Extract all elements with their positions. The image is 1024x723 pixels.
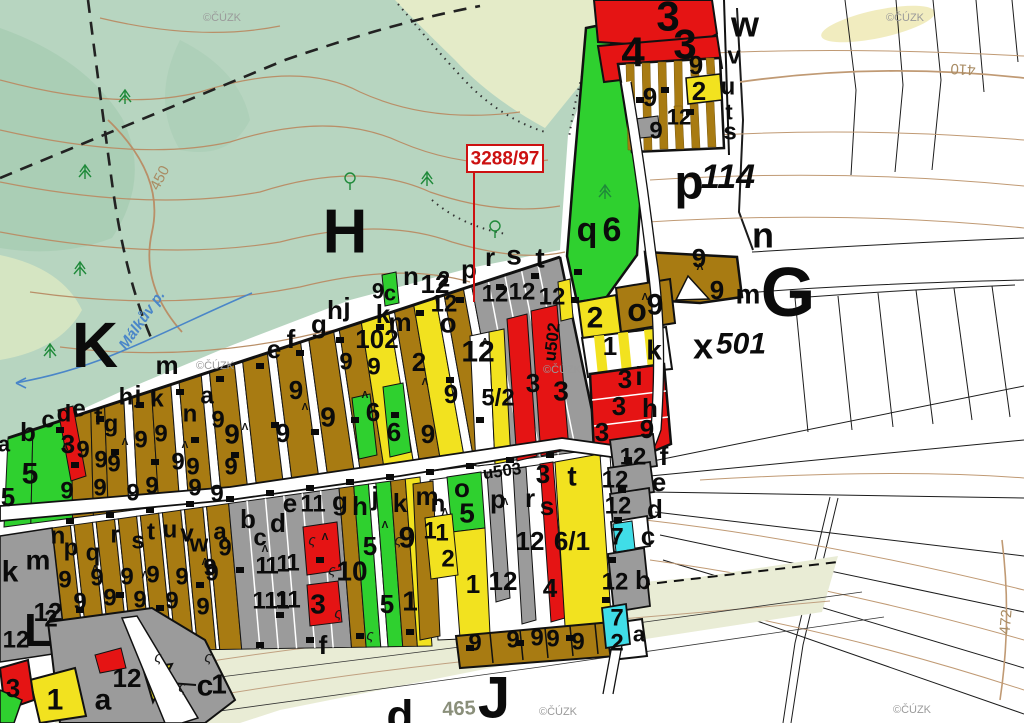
parcel-label: n	[403, 261, 419, 291]
parcel-label: 9	[126, 480, 139, 507]
parcel-label: 9	[196, 594, 209, 621]
parcel-label: 12	[667, 105, 691, 130]
building	[196, 582, 204, 588]
parcel-label: e	[652, 467, 666, 497]
parcel-label: 1	[47, 684, 64, 717]
parcel-label: 9	[145, 473, 158, 500]
parcel-label: q	[577, 211, 598, 249]
parcel-label: t	[147, 519, 155, 546]
parcel-label: j	[342, 292, 350, 322]
parcel-label: d	[57, 401, 72, 428]
parcel-label: 11	[300, 491, 325, 518]
parcel-label: 12	[431, 291, 458, 318]
parcel-label: c	[253, 525, 266, 552]
building	[546, 452, 554, 458]
parcel-label: 9	[546, 626, 559, 653]
parcel-label: a	[95, 684, 112, 717]
parcel-label: g	[311, 309, 327, 339]
parcel-label: t	[567, 461, 576, 492]
parcel-label: r	[110, 522, 119, 549]
parcel-label: n	[752, 215, 774, 256]
orchard-icon: Λ	[422, 377, 429, 388]
parcel-label: 3	[595, 417, 609, 447]
parcel-label: 9	[76, 437, 89, 464]
parcel-label: 501	[716, 328, 766, 361]
parcel-label: d	[647, 494, 663, 524]
parcel-label: k	[646, 335, 662, 366]
parcel-label: k	[393, 488, 408, 518]
region-letter: K	[72, 309, 118, 381]
parcel-label: 2	[438, 267, 450, 292]
parcel-label: 9	[133, 587, 146, 614]
parcel-label: 9	[107, 451, 120, 478]
building	[151, 459, 159, 465]
parcel-label: 12	[482, 281, 509, 308]
building	[336, 337, 344, 343]
scrub-icon: ς	[204, 649, 212, 666]
building	[356, 633, 364, 639]
parcel-label: i	[635, 361, 642, 391]
parcel-label: k	[150, 386, 164, 413]
parcel-label: 9	[289, 375, 303, 405]
parcel-label: e	[283, 488, 297, 518]
parcel-label: g	[104, 411, 119, 438]
contour-label: 410	[950, 60, 976, 78]
parcel-label: 4	[543, 573, 558, 603]
parcel-label: g	[332, 486, 348, 516]
parcel-label: 9	[444, 379, 458, 409]
building	[416, 310, 424, 316]
parcel-label: j	[134, 382, 142, 409]
parcel-label: 9	[165, 588, 178, 615]
parcel-label: f	[319, 630, 328, 660]
parcel-label: 9	[211, 407, 224, 434]
parcel-label: 9	[692, 243, 706, 273]
parcel-label: r	[485, 242, 495, 272]
building	[226, 496, 234, 502]
parcel-label: a	[0, 432, 11, 457]
parcel-label: n	[183, 401, 198, 428]
parcel-label: k	[2, 556, 19, 589]
watermark: ©ČÚZK	[196, 359, 235, 372]
parcel-label: 3	[536, 459, 550, 489]
building	[476, 417, 484, 423]
parcel-label: s	[540, 491, 554, 521]
parcel-label: v	[727, 43, 741, 70]
parcel-label: 1	[286, 550, 299, 577]
parcel-label: p	[674, 157, 703, 210]
building	[574, 269, 582, 275]
parcel-label: 12	[489, 566, 518, 596]
contour-label: 472	[996, 609, 1015, 635]
building	[66, 518, 74, 524]
building	[186, 501, 194, 507]
scrub-icon: ς	[178, 679, 186, 696]
parcel-label: 5	[380, 589, 394, 619]
scrub-icon: ς	[334, 605, 342, 622]
parcel-label: 9	[421, 419, 435, 449]
parcel-label: 3	[526, 368, 540, 398]
parcel-label: 1	[402, 586, 418, 617]
parcel-label: 114	[701, 158, 755, 196]
building	[602, 597, 610, 603]
parcel-label: 6	[387, 417, 401, 447]
building	[306, 637, 314, 643]
building	[216, 376, 224, 382]
parcel-label: x	[693, 326, 713, 367]
parcel-label: 9	[276, 418, 290, 448]
map-canvas[interactable]: ΛΛΛΛΛΛΛΛΛΛΛΛΛΛΛΛΛΛςςςςςςςς KHGJLd3439291…	[0, 0, 1024, 723]
parcel-label: 12	[516, 526, 545, 556]
orchard-icon: Λ	[122, 437, 129, 448]
parcel-label: 9	[643, 82, 657, 112]
parcel-label: 1	[466, 569, 480, 599]
building	[176, 389, 184, 395]
parcel-label: u	[163, 517, 178, 544]
building	[256, 642, 264, 648]
parcel-label: 3	[553, 376, 569, 407]
orchard-icon: Λ	[242, 422, 249, 433]
parcel-label: 12	[113, 663, 142, 693]
watermark: ©ČÚZK	[543, 363, 582, 376]
building	[661, 87, 669, 93]
parcel-label: e	[72, 396, 85, 423]
parcel-label: 1	[435, 520, 448, 547]
parcel-label: m	[26, 545, 51, 576]
callout-text: 3288/97	[471, 149, 540, 170]
parcel-label: 9	[218, 535, 231, 562]
parcel-label: c	[41, 407, 54, 434]
parcel-label: q	[86, 540, 101, 567]
parcel-label: 9	[103, 585, 116, 612]
parcel-label: 9	[506, 627, 519, 654]
parcel-label: 9	[647, 289, 664, 322]
parcel-label: 9	[120, 564, 133, 591]
parcel-label: 2	[587, 302, 604, 335]
parcel-label: 9	[320, 402, 336, 433]
parcel-label: 9	[399, 522, 416, 555]
parcel-label: 5	[459, 498, 475, 529]
building	[256, 363, 264, 369]
orchard-icon: Λ	[322, 532, 329, 543]
cadastral-map: ΛΛΛΛΛΛΛΛΛΛΛΛΛΛΛΛΛΛςςςςςςςς KHGJLd3439291…	[0, 0, 1024, 723]
parcel-label: 2	[692, 76, 706, 106]
parcel-label: s	[506, 240, 522, 271]
parcel-label: 12	[602, 569, 629, 596]
parcel-label: 5/2	[481, 385, 514, 412]
parcel-label: 9	[175, 564, 188, 591]
parcel-label: n	[431, 491, 446, 518]
parcel-label: 6	[603, 211, 622, 249]
parcel-label: 9	[93, 475, 106, 502]
parcel-label: u	[721, 74, 736, 101]
parcel-label: 9	[640, 414, 654, 444]
parcel-label: 9	[60, 478, 73, 505]
parcel-label: 1	[603, 331, 617, 361]
parcel-label: w	[730, 4, 760, 45]
parcel-label: h	[352, 491, 368, 521]
building	[266, 490, 274, 496]
parcel-label: a	[200, 383, 214, 410]
building	[386, 474, 394, 480]
region-letter: d	[387, 692, 414, 723]
parcel-label: 102	[355, 324, 398, 354]
parcel-label: 9	[171, 449, 184, 476]
parcel-label: 5	[1, 482, 15, 512]
parcel-label: 9	[188, 475, 201, 502]
parcel-label: o	[627, 292, 647, 328]
parcel-label: 9	[134, 427, 147, 454]
region-letter: G	[761, 253, 815, 331]
parcel-label: a	[633, 622, 646, 647]
parcel-label: 6/1	[554, 526, 590, 556]
watermark: ©ČÚZK	[893, 703, 932, 716]
parcel-label: 9	[154, 421, 167, 448]
parcel-label: 9	[73, 589, 86, 616]
building	[571, 297, 579, 303]
parcel-label: t	[535, 243, 544, 274]
building	[351, 417, 359, 423]
building	[191, 437, 199, 443]
parcel-label: 3	[612, 391, 626, 421]
parcel-label: 7	[610, 524, 623, 551]
parcel-label: 12	[602, 467, 629, 494]
parcel-label: 6	[366, 397, 380, 427]
watermark: ©ČÚZK	[886, 11, 925, 24]
parcel-label: r	[525, 483, 535, 513]
building	[346, 479, 354, 485]
parcel-label: 9	[372, 279, 384, 304]
parcel-label: h	[327, 295, 343, 325]
parcel-label: 2	[412, 347, 426, 377]
parcel-label: 9	[649, 118, 662, 145]
parcel-label: h	[119, 384, 134, 411]
scrub-icon: ς	[154, 649, 162, 666]
parcel-label: 9	[90, 565, 103, 592]
parcel-label: b	[20, 417, 36, 447]
parcel-label: 9	[367, 354, 380, 381]
parcel-label: c	[641, 521, 655, 551]
building	[426, 469, 434, 475]
parcel-label: 7	[610, 605, 623, 632]
region-letter: H	[323, 198, 368, 267]
parcel-label: 9	[203, 555, 216, 582]
parcel-label: e	[267, 334, 281, 364]
parcel-label: 9	[571, 629, 584, 656]
parcel-label: s	[131, 528, 144, 555]
parcel-label: 5	[363, 531, 377, 561]
parcel-label: 12	[539, 284, 566, 311]
parcel-label: 5	[22, 458, 39, 491]
parcel-label: 9	[146, 562, 159, 589]
parcel-label: 3	[6, 673, 20, 703]
building	[406, 629, 414, 635]
orchard-icon: Λ	[382, 520, 389, 531]
parcel-label: 1	[211, 669, 227, 700]
parcel-label: 12	[605, 493, 632, 520]
parcel-label: 3	[618, 364, 632, 394]
building	[146, 507, 154, 513]
building	[316, 557, 324, 563]
parcel-label: 4	[621, 29, 645, 76]
road-label: 465	[442, 697, 476, 721]
parcel-label: f	[94, 404, 103, 431]
scrub-icon: ς	[366, 627, 374, 644]
parcel-label: 9	[530, 625, 543, 652]
scrub-icon: ς	[328, 562, 336, 579]
building	[156, 605, 164, 611]
parcel-label: 12	[3, 627, 30, 654]
watermark: ©ČÚZK	[203, 11, 242, 24]
parcel-label: 11	[275, 587, 300, 614]
parcel-label: 9	[210, 481, 223, 508]
building	[311, 429, 319, 435]
building	[106, 512, 114, 518]
parcel-label: p	[64, 535, 79, 562]
parcel-label: m	[736, 279, 761, 310]
parcel-label: w	[189, 531, 209, 558]
parcel-label: 2	[441, 546, 454, 573]
parcel-label: 9	[339, 349, 352, 376]
parcel-label: 3	[310, 589, 326, 620]
parcel-label: j	[370, 481, 378, 511]
parcel-label: c	[384, 281, 396, 306]
parcel-label: 2	[44, 606, 57, 633]
parcel-label: f	[287, 324, 296, 354]
parcel-label: 2	[610, 630, 623, 657]
parcel-label: 3	[61, 429, 75, 459]
parcel-label: m	[155, 350, 178, 380]
parcel-label: b	[635, 565, 651, 595]
scrub-icon: ς	[308, 532, 316, 549]
region-letter: J	[478, 666, 510, 723]
parcel-label: s	[723, 119, 736, 146]
watermark: ©ČÚZK	[539, 705, 578, 718]
building	[296, 350, 304, 356]
parcel-label: 9	[224, 454, 237, 481]
parcel-label: 12	[461, 336, 494, 369]
building	[608, 557, 616, 563]
parcel-label: 9	[710, 275, 724, 305]
parcel-label: p	[490, 484, 506, 514]
parcel-label: 9	[58, 567, 71, 594]
building	[236, 567, 244, 573]
building	[116, 592, 124, 598]
parcel-label: 9	[468, 630, 481, 657]
parcel-label: 9	[224, 419, 240, 450]
parcel-label: 12	[509, 279, 536, 306]
parcel-label: 9	[94, 447, 107, 474]
building	[466, 463, 474, 469]
